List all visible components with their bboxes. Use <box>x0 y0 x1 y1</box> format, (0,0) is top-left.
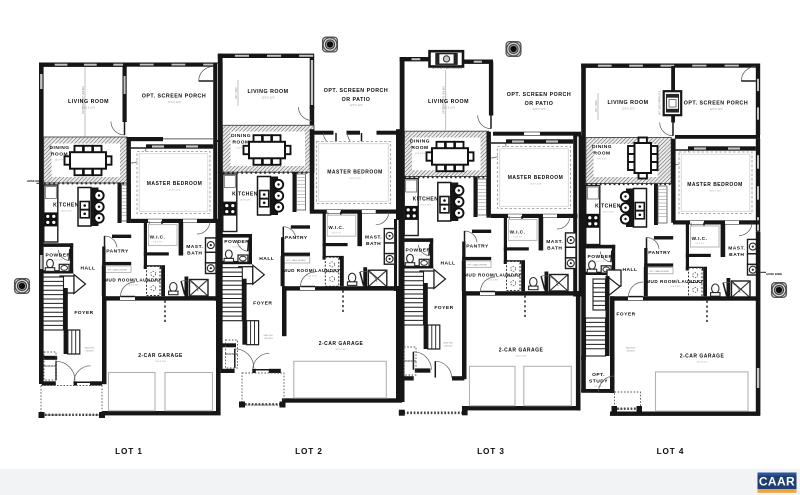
svg-text:10'6 X 6'0: 10'6 X 6'0 <box>488 280 498 282</box>
svg-text:VAULTED: VAULTED <box>443 342 453 345</box>
svg-text:OPT. SCREEN PORCH: OPT. SCREEN PORCH <box>142 94 206 100</box>
svg-text:ROOM: ROOM <box>411 145 428 151</box>
svg-text:12'0 X 12'0: 12'0 X 12'0 <box>710 107 723 111</box>
svg-text:VAULTED: VAULTED <box>626 346 636 349</box>
svg-text:OPT. 60 IN TV ABV FIREPLACE: OPT. 60 IN TV ABV FIREPLACE <box>432 67 463 70</box>
svg-text:DINING: DINING <box>49 145 69 151</box>
svg-text:OPT. SCREEN PORCH: OPT. SCREEN PORCH <box>507 92 571 98</box>
svg-text:MAST.: MAST. <box>728 245 745 251</box>
svg-text:OPT. CABS W/SINK: OPT. CABS W/SINK <box>649 270 669 273</box>
svg-text:OPT. TRAY: OPT. TRAY <box>235 87 238 99</box>
svg-text:13'0 X 9'2: 13'0 X 9'2 <box>55 160 65 162</box>
svg-text:KITCHEN: KITCHEN <box>413 197 439 203</box>
svg-text:15'0 X 12'0: 15'0 X 12'0 <box>262 96 275 100</box>
svg-text:10'6 X 6'0: 10'6 X 6'0 <box>307 275 317 277</box>
svg-text:VAULTED: VAULTED <box>85 347 95 350</box>
svg-text:OPT. CABS W/SINK: OPT. CABS W/SINK <box>286 259 306 262</box>
svg-text:OPT. CABS W/SINK: OPT. CABS W/SINK <box>107 268 127 271</box>
svg-text:LOT 1: LOT 1 <box>115 447 143 456</box>
svg-text:12'0 X 12'6: 12'0 X 12'6 <box>61 211 73 213</box>
svg-text:W.I.C.: W.I.C. <box>150 234 166 239</box>
svg-text:16'4’ X 12'6: 16'4’ X 12'6 <box>709 191 721 193</box>
svg-text:MASTER BEDROOM: MASTER BEDROOM <box>508 175 564 181</box>
svg-text:5'0 X 7'0: 5'0 X 7'0 <box>513 237 522 239</box>
svg-text:OR PATIO: OR PATIO <box>525 101 554 107</box>
svg-text:OPT. SCREEN PORCH: OPT. SCREEN PORCH <box>684 101 748 107</box>
svg-text:2-CAR GARAGE: 2-CAR GARAGE <box>138 353 183 359</box>
svg-text:20'0 X 20'0: 20'0 X 20'0 <box>697 362 709 364</box>
svg-text:2-CAR GARAGE: 2-CAR GARAGE <box>680 354 725 360</box>
svg-text:5'0 X 5'0: 5'0 X 5'0 <box>233 246 242 248</box>
svg-text:LOT 4: LOT 4 <box>657 447 685 456</box>
svg-text:HALL: HALL <box>622 267 637 273</box>
svg-text:5'0 X 7'0: 5'0 X 7'0 <box>332 232 341 234</box>
svg-text:HALL: HALL <box>259 256 274 262</box>
svg-text:20'0 X 20'0: 20'0 X 20'0 <box>336 349 348 351</box>
svg-text:BATH: BATH <box>366 241 381 247</box>
svg-text:12'0 X 12'6: 12'0 X 12'6 <box>240 200 252 202</box>
svg-text:PANTRY: PANTRY <box>285 235 308 241</box>
svg-text:W.I.C.: W.I.C. <box>692 236 708 241</box>
svg-text:LIVING ROOM: LIVING ROOM <box>247 89 288 95</box>
svg-text:BATH: BATH <box>729 252 744 258</box>
svg-text:DINING: DINING <box>231 133 251 139</box>
svg-text:5'0 X 5'0: 5'0 X 5'0 <box>596 261 605 263</box>
svg-text:DINING: DINING <box>410 139 430 145</box>
svg-text:5'0 X 5'0: 5'0 X 5'0 <box>54 260 63 262</box>
svg-text:5'0 X 7'0: 5'0 X 7'0 <box>153 242 162 244</box>
svg-text:BATH: BATH <box>547 245 562 251</box>
svg-text:LOT 2: LOT 2 <box>295 447 323 456</box>
svg-text:12'0 X 12'0: 12'0 X 12'0 <box>533 107 546 111</box>
svg-text:KITCHEN: KITCHEN <box>595 204 621 210</box>
svg-text:CEILING: CEILING <box>626 350 635 352</box>
svg-text:13'6 X 12'0: 13'6 X 12'0 <box>82 106 95 110</box>
svg-text:MUD ROOM/LAUNDRY: MUD ROOM/LAUNDRY <box>104 277 162 282</box>
svg-text:MASTER BEDROOM: MASTER BEDROOM <box>147 181 203 187</box>
svg-text:13'6 X 12'0: 13'6 X 12'0 <box>622 107 635 111</box>
svg-text:20'0 X 20'0: 20'0 X 20'0 <box>516 356 528 358</box>
svg-text:12'0 X 12'6: 12'0 X 12'6 <box>420 205 432 207</box>
svg-text:16'4’ X 12'6: 16'4’ X 12'6 <box>169 190 181 192</box>
svg-text:FOYER: FOYER <box>74 310 93 316</box>
svg-text:MAST.: MAST. <box>546 239 563 245</box>
svg-text:OPT.: OPT. <box>592 372 605 378</box>
svg-text:12'0 X 12'0: 12'0 X 12'0 <box>350 103 363 107</box>
svg-text:2-CAR GARAGE: 2-CAR GARAGE <box>499 348 544 354</box>
svg-text:OPT. SCREEN PORCH: OPT. SCREEN PORCH <box>324 88 388 94</box>
svg-text:ROOM: ROOM <box>232 140 249 146</box>
svg-text:MAST.: MAST. <box>365 235 382 241</box>
svg-text:POWDER: POWDER <box>405 247 430 253</box>
svg-text:PANTRY: PANTRY <box>466 243 489 249</box>
svg-text:12'0 X 12'0: 12'0 X 12'0 <box>168 100 181 104</box>
svg-text:CAAR: CAAR <box>759 475 795 489</box>
svg-text:16'4’ X 12'6: 16'4’ X 12'6 <box>349 178 361 180</box>
svg-text:ROOM: ROOM <box>593 151 610 157</box>
svg-text:20'0 X 20'0: 20'0 X 20'0 <box>155 361 167 363</box>
svg-text:HALL: HALL <box>80 265 95 271</box>
svg-text:LIVING ROOM: LIVING ROOM <box>428 99 469 105</box>
svg-text:BATH: BATH <box>187 250 202 256</box>
svg-text:13'0 X 9'2: 13'0 X 9'2 <box>597 159 607 161</box>
svg-text:12'0 X 12'6: 12'0 X 12'6 <box>603 212 615 214</box>
svg-text:CEILING: CEILING <box>444 346 453 348</box>
svg-text:KITCHEN: KITCHEN <box>232 192 258 198</box>
svg-text:W.I.C.: W.I.C. <box>328 225 344 230</box>
svg-text:POWDER: POWDER <box>224 239 249 245</box>
svg-text:10'6 X 6'0: 10'6 X 6'0 <box>670 286 680 288</box>
svg-text:LOT 3: LOT 3 <box>477 447 505 456</box>
svg-text:OR PATIO: OR PATIO <box>342 97 371 103</box>
svg-text:PANTRY: PANTRY <box>648 250 671 256</box>
svg-text:16'4’ X 12'6: 16'4’ X 12'6 <box>530 184 542 186</box>
svg-text:MUD ROOM/LAUNDRY: MUD ROOM/LAUNDRY <box>464 272 522 277</box>
svg-text:HOSE BIBB: HOSE BIBB <box>27 179 43 183</box>
svg-text:STUDY: STUDY <box>589 379 608 385</box>
svg-text:MASTER BEDROOM: MASTER BEDROOM <box>687 182 743 188</box>
svg-text:5'0 X 7'0: 5'0 X 7'0 <box>695 243 704 245</box>
svg-text:HALL: HALL <box>440 260 455 266</box>
svg-text:OPT. SIDE FIREPLACE: OPT. SIDE FIREPLACE <box>659 90 662 115</box>
svg-text:5'0 X 5'0: 5'0 X 5'0 <box>414 255 423 257</box>
svg-text:CEILING: CEILING <box>85 351 94 353</box>
svg-text:PANTRY: PANTRY <box>106 248 129 254</box>
svg-text:DINING: DINING <box>592 144 612 150</box>
svg-text:13'6 X 12'0: 13'6 X 12'0 <box>442 106 455 110</box>
svg-text:POWDER: POWDER <box>587 254 612 260</box>
svg-text:LIVING ROOM: LIVING ROOM <box>68 99 109 105</box>
svg-text:FOYER: FOYER <box>434 305 453 311</box>
svg-text:MAST.: MAST. <box>186 244 203 250</box>
svg-text:POWDER: POWDER <box>45 252 70 258</box>
svg-text:MASTER BEDROOM: MASTER BEDROOM <box>327 170 383 176</box>
svg-text:OPT. TRAY: OPT. TRAY <box>595 100 598 112</box>
svg-text:CEILING: CEILING <box>264 338 273 340</box>
svg-text:OPT. CABS W/SINK: OPT. CABS W/SINK <box>467 263 487 266</box>
svg-text:KITCHEN: KITCHEN <box>53 203 79 209</box>
svg-text:10'6 X 6'0: 10'6 X 6'0 <box>128 285 138 287</box>
svg-text:LIVING ROOM: LIVING ROOM <box>607 100 648 106</box>
svg-text:W.I.C.: W.I.C. <box>510 229 526 234</box>
svg-text:13'0 X 9'2: 13'0 X 9'2 <box>415 153 425 155</box>
svg-text:VAULTED: VAULTED <box>263 334 273 337</box>
svg-text:FOYER: FOYER <box>253 301 272 307</box>
svg-text:2-CAR GARAGE: 2-CAR GARAGE <box>319 341 364 347</box>
svg-text:MUD ROOM/LAUNDRY: MUD ROOM/LAUNDRY <box>646 279 704 284</box>
svg-text:FOYER: FOYER <box>616 311 635 317</box>
svg-text:HOSE BIBB: HOSE BIBB <box>766 272 782 276</box>
